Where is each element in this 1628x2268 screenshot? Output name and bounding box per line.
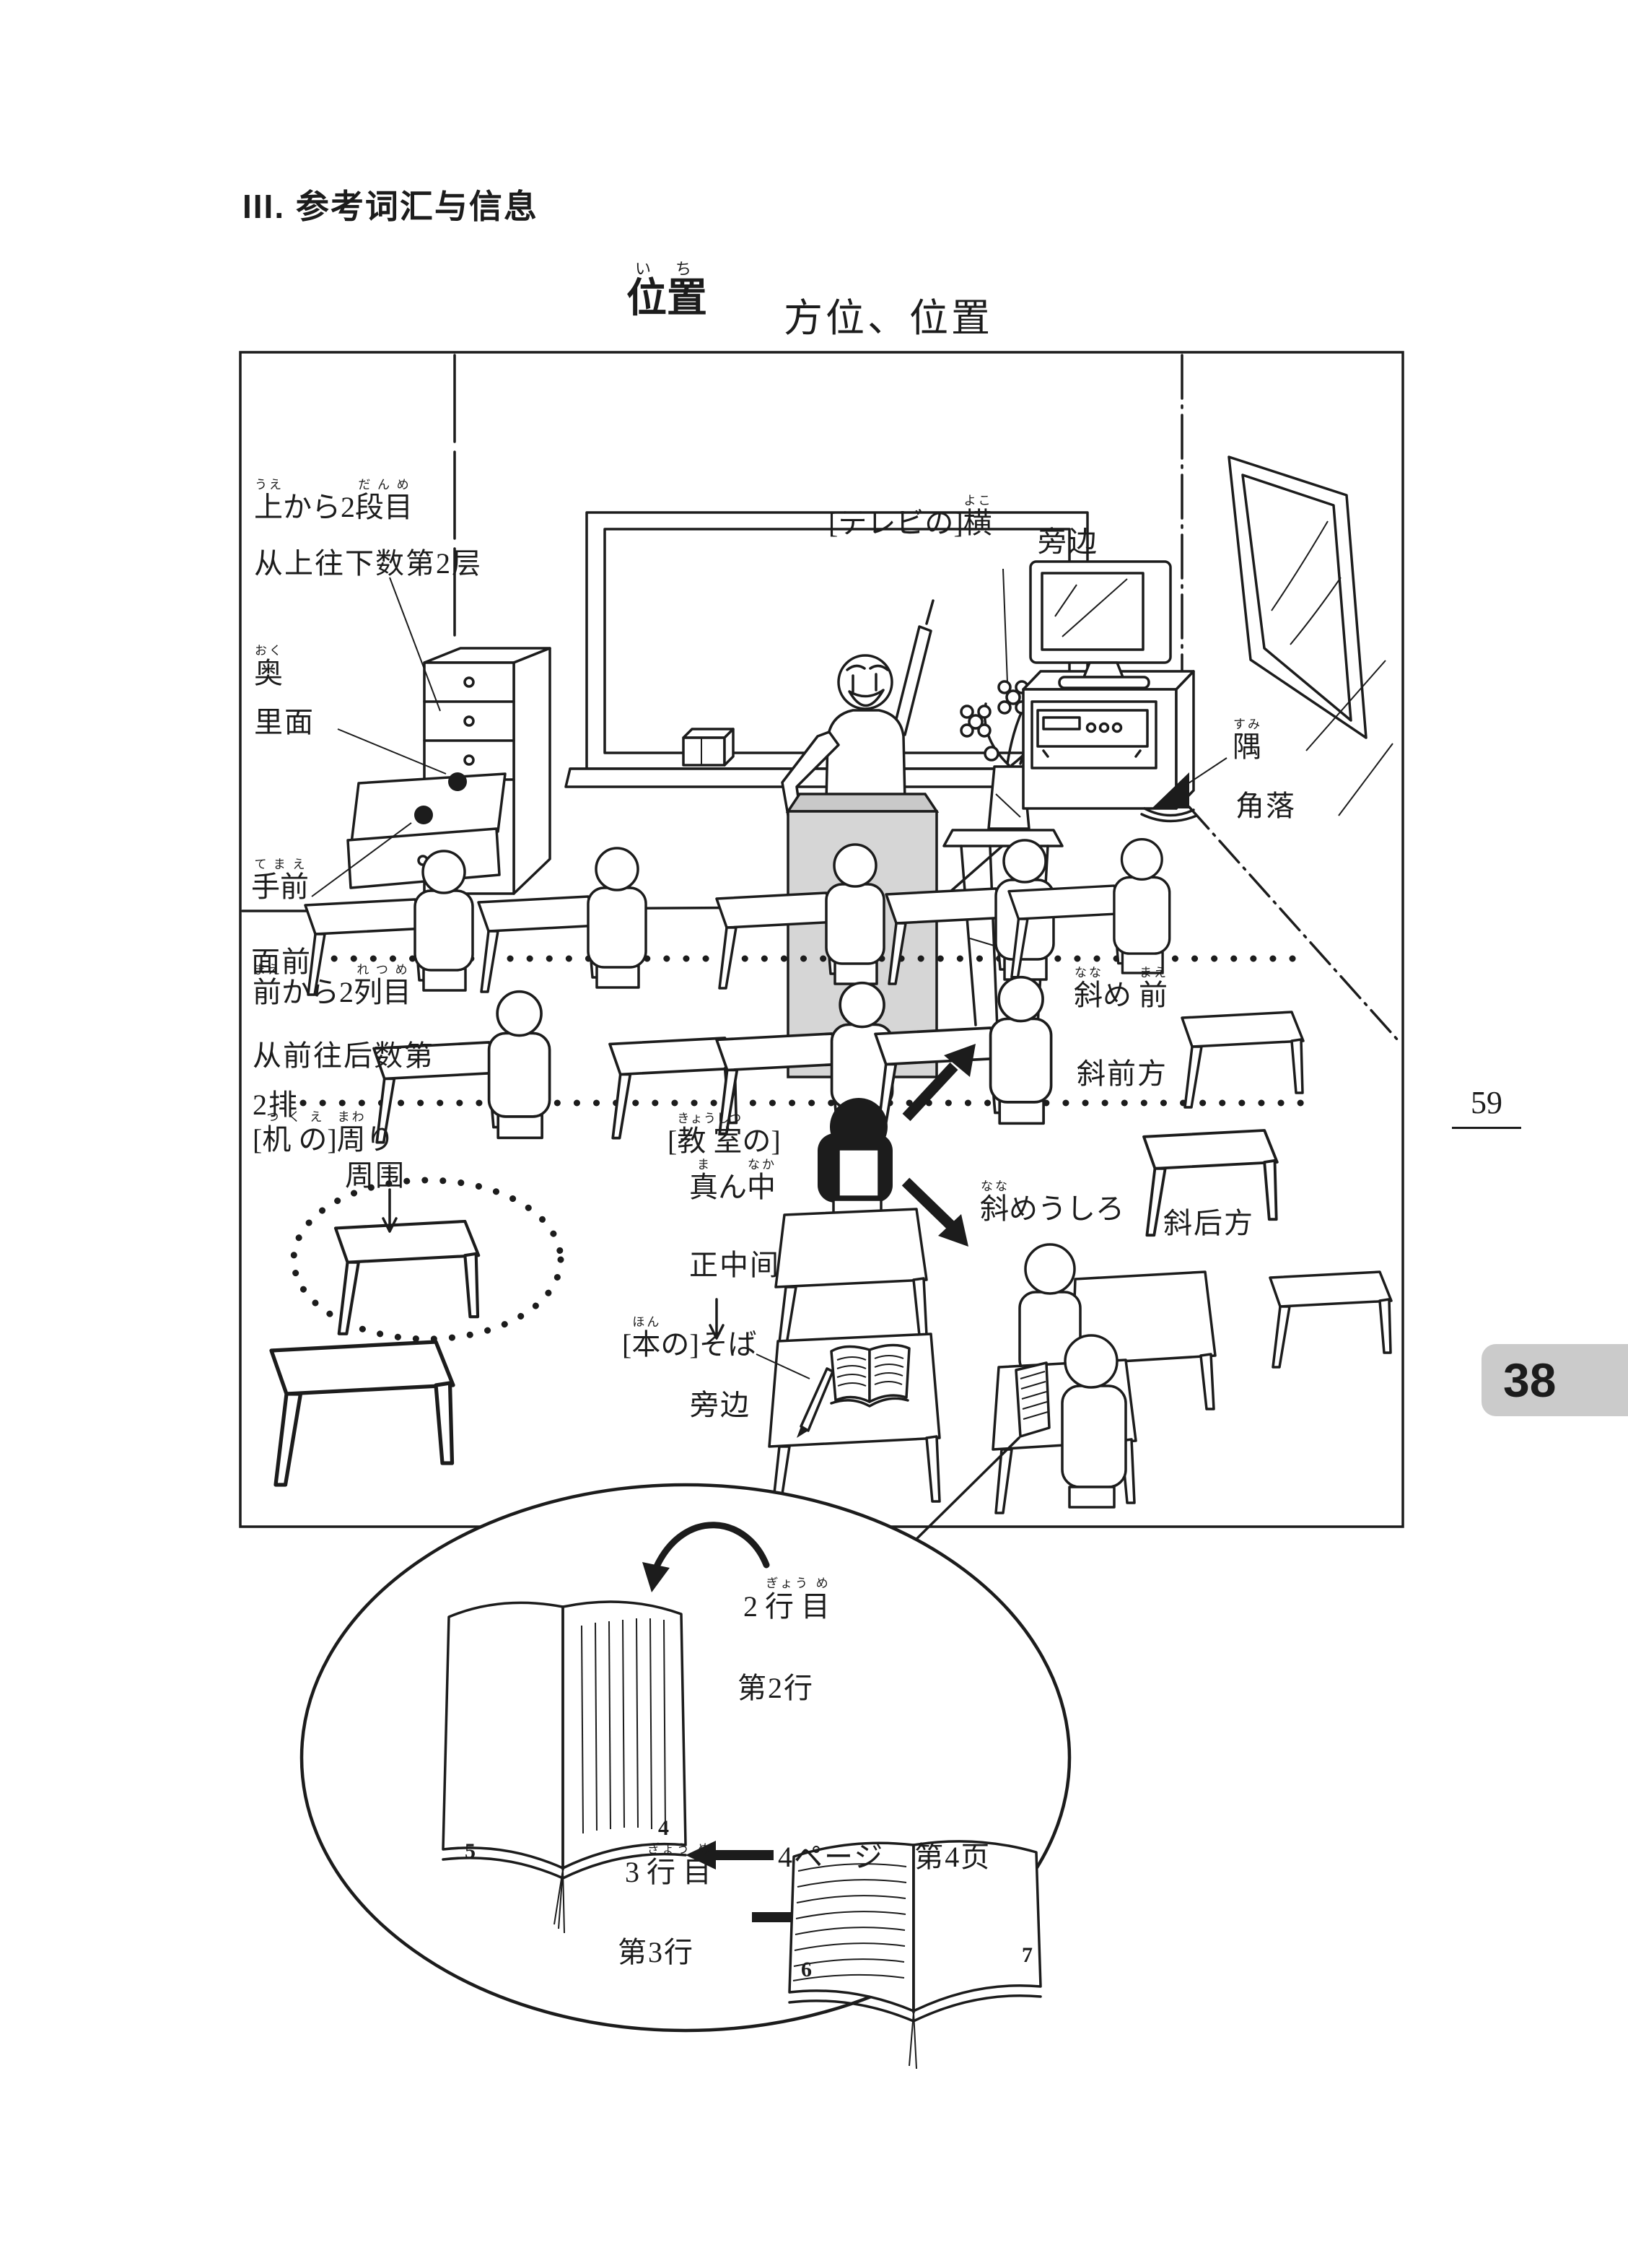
near-dot (414, 806, 433, 824)
label-from-top-2nd-zh: 从上往下数第2层 (254, 540, 482, 582)
label-corner-zh: 角落 (1235, 782, 1296, 824)
textbook-page: III. 参考词汇与信息 位い置ち 方位、位置 上うえから2段目だんめ 从上往下… (0, 0, 1628, 2268)
lesson-number-tab: 38 (1482, 1344, 1628, 1416)
label-beside-tv-zh: 旁边 (1038, 518, 1098, 560)
label-front-near-ja: 手前てまえ (251, 858, 309, 902)
label-beside-tv-ja: [テレビの]横よこ (828, 494, 992, 538)
label-second-row-zh1: 从前往后数第 (253, 1032, 434, 1074)
label-diagonal-behind-ja: 斜ななめうしろ (980, 1179, 1124, 1224)
deep-dot (448, 772, 467, 791)
inset-label-line2-zh: 第2行 (738, 1665, 814, 1706)
book1-page5-number: 5 (465, 1839, 476, 1864)
book2-page7-number: 7 (1022, 1943, 1033, 1968)
inset-label-line2-ja: 2 行 目ぎょう め (743, 1576, 830, 1621)
label-diagonal-front-zh: 斜前方 (1077, 1050, 1168, 1092)
inset-book-2 (789, 1841, 1041, 2069)
book1-page4-number: 4 (658, 1816, 669, 1841)
label-corner-ja: 隅すみ (1233, 718, 1261, 762)
section-header: III. 参考词汇与信息 (242, 180, 538, 228)
book2-page6-number: 6 (801, 1958, 812, 1982)
label-classroom-middle-ja1: [教 室きょうしつの] (668, 1112, 781, 1156)
book-in-hands (1016, 1363, 1049, 1436)
label-beside-book-zh: 旁边 (690, 1382, 750, 1423)
chalk-eraser (683, 729, 733, 765)
label-around-desk-ja: [机 のつくえ]周まわり (253, 1110, 395, 1154)
inset-label-line3-ja: 3 行 目ぎょう め (625, 1842, 712, 1887)
label-second-row-ja: 前まえから2列目れつめ (253, 963, 411, 1007)
inset-label-page4: 4ページ 第4页 (778, 1833, 991, 1875)
inset-label-line3-zh: 第3行 (618, 1929, 694, 1971)
label-back-ja: 奥おく (254, 644, 283, 688)
tv-cabinet (1023, 671, 1194, 808)
label-diagonal-front-ja: 斜ななめ 前まえ (1074, 966, 1168, 1010)
label-back-zh: 里面 (254, 699, 315, 741)
label-classroom-middle-zh: 正中间 (689, 1242, 780, 1283)
page-number: 59 (1452, 1084, 1521, 1129)
title-word: 位い置ち (626, 260, 707, 319)
label-beside-book-ja: [本ほんの]そば (622, 1315, 757, 1359)
label-around-desk-zh: 周围 (345, 1152, 406, 1194)
label-diagonal-behind-zh: 斜后方 (1163, 1200, 1254, 1242)
title-subtitle: 方位、位置 (784, 286, 993, 343)
label-from-top-2nd-ja: 上うえから2段目だんめ (254, 478, 413, 522)
label-classroom-middle-ja2: 真まん中なか (689, 1158, 776, 1202)
